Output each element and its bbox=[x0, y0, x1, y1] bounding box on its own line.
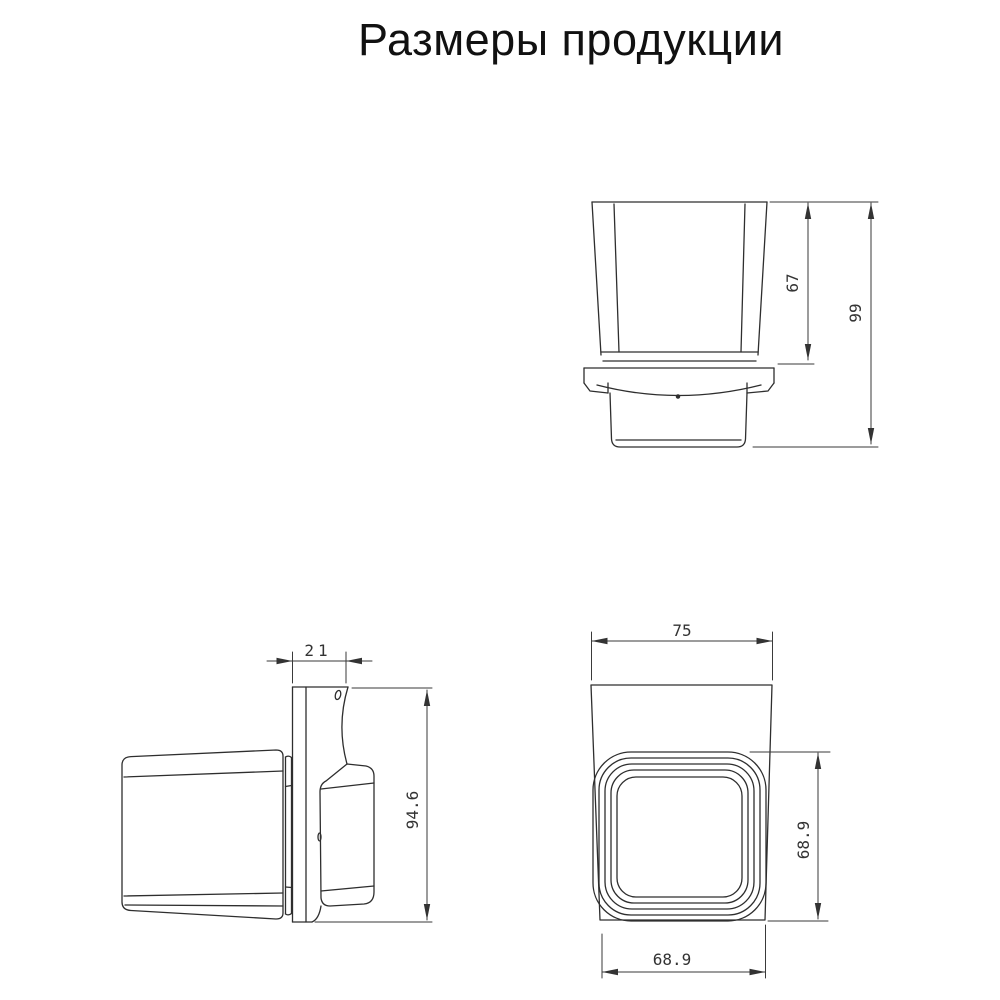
side-view-drawing: 21 94.6 bbox=[85, 625, 455, 975]
front-dimensions: 67 99 bbox=[753, 202, 878, 447]
side-gasket-strip bbox=[286, 756, 292, 915]
dimension-label-side-depth: 68.9 bbox=[794, 821, 813, 860]
front-cup-outline bbox=[592, 202, 767, 361]
front-holder-flange bbox=[584, 368, 774, 398]
top-dimensions: 75 68.9 68.9 bbox=[592, 621, 831, 978]
top-rim-rings bbox=[593, 752, 766, 921]
side-holder-bracket bbox=[318, 764, 374, 906]
front-holder-base bbox=[610, 393, 747, 447]
front-view-drawing: 67 99 bbox=[555, 175, 895, 475]
page-title: Размеры продукции bbox=[358, 14, 784, 66]
side-cup-outline bbox=[122, 750, 283, 919]
dimension-label-top-width: 75 bbox=[672, 621, 691, 640]
dimension-label-bottom-width: 68.9 bbox=[653, 950, 692, 969]
drawing-canvas: Размеры продукции bbox=[0, 0, 1000, 1000]
dimension-label-depth: 21 bbox=[304, 641, 331, 660]
dimension-label-total-height: 99 bbox=[846, 303, 865, 322]
dimension-label-plate-height: 94.6 bbox=[403, 791, 422, 830]
top-view-drawing: 75 68.9 68.9 bbox=[570, 612, 840, 992]
dimension-label-cup-height: 67 bbox=[783, 273, 802, 292]
